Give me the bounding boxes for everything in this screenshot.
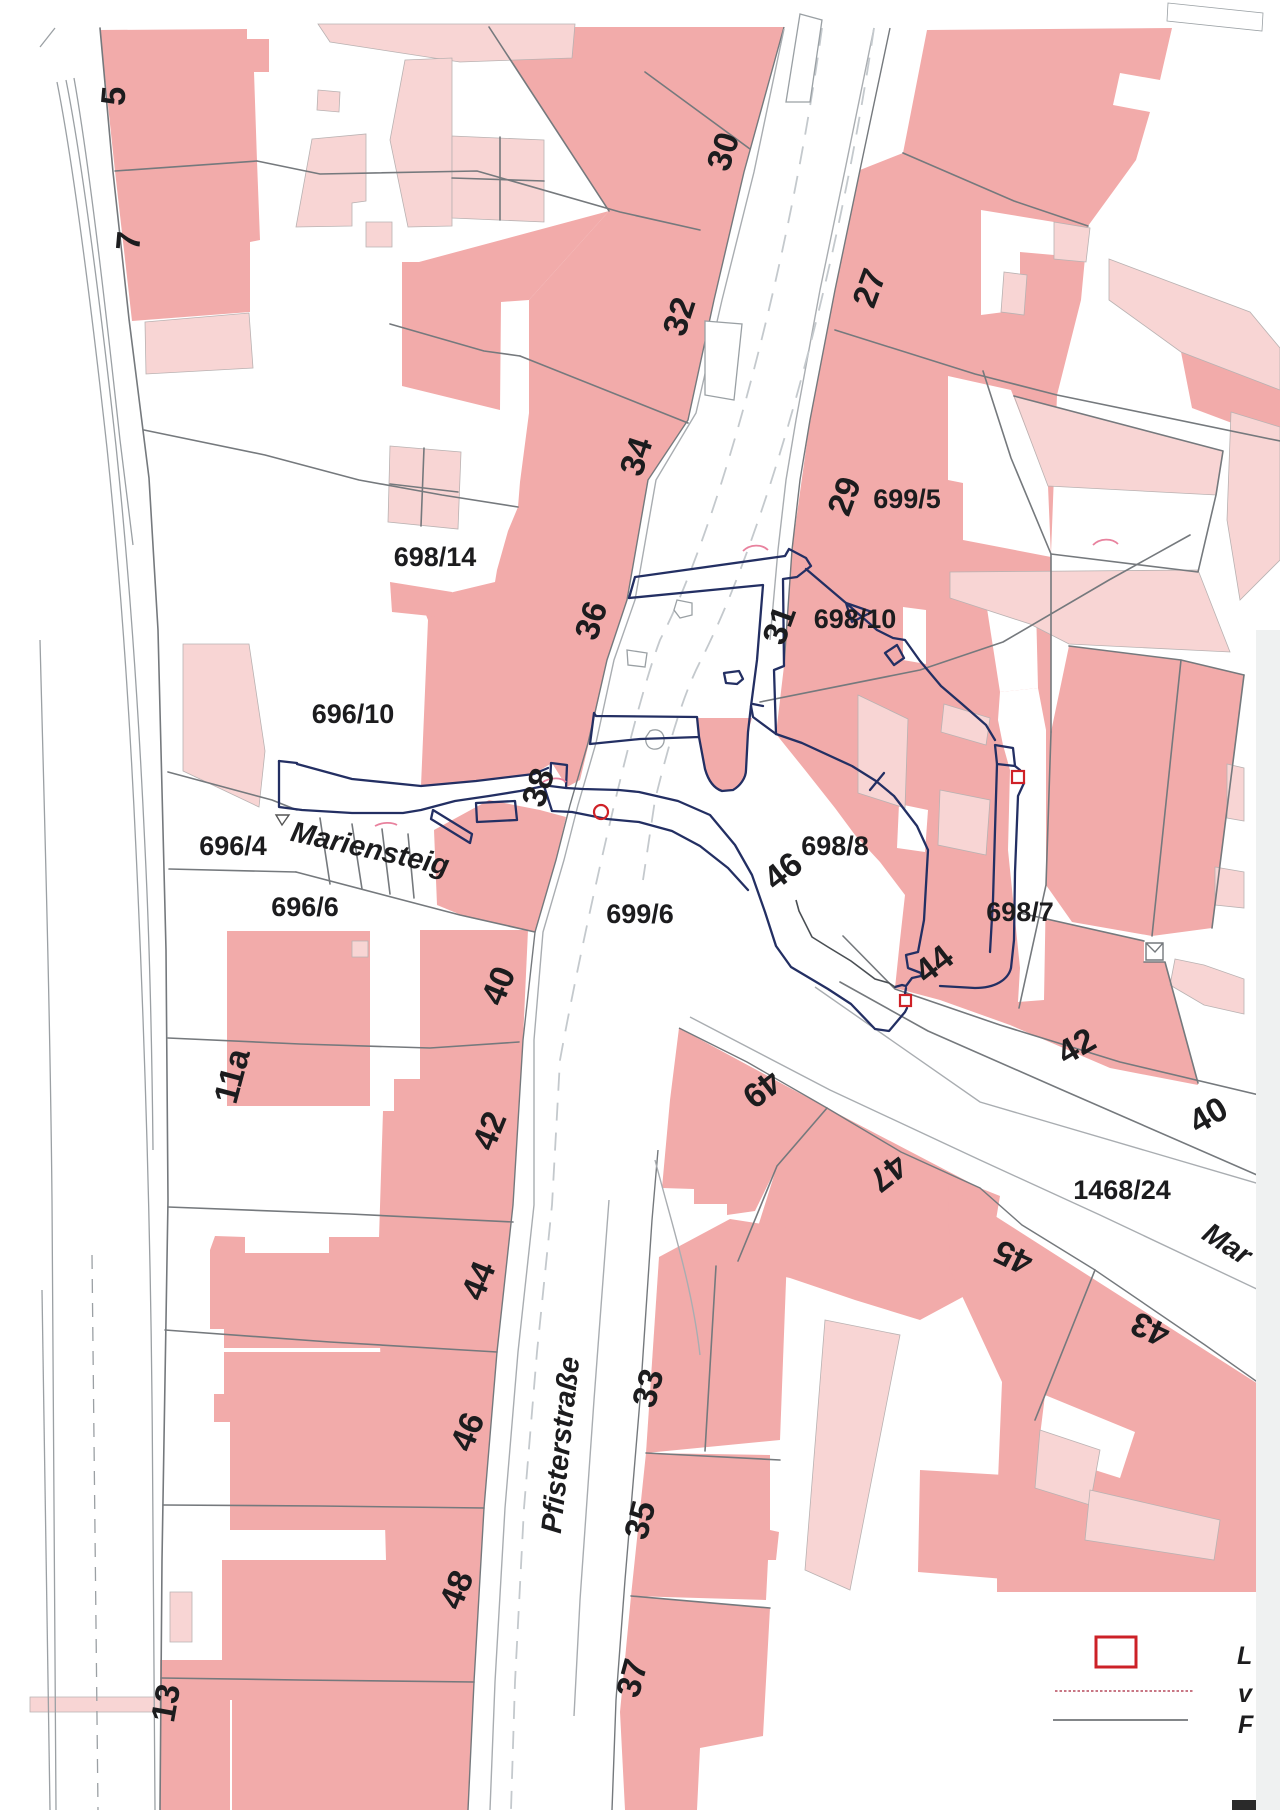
- svg-text:696/10: 696/10: [312, 699, 395, 729]
- svg-text:L: L: [1237, 1642, 1252, 1670]
- svg-text:696/4: 696/4: [199, 831, 267, 861]
- svg-text:699/5: 699/5: [873, 484, 941, 514]
- svg-text:1468/24: 1468/24: [1073, 1175, 1171, 1205]
- svg-text:699/6: 699/6: [606, 899, 674, 929]
- svg-text:7: 7: [109, 230, 149, 252]
- svg-text:698/7: 698/7: [986, 897, 1054, 927]
- svg-text:698/14: 698/14: [394, 542, 477, 572]
- svg-text:698/8: 698/8: [801, 831, 869, 861]
- svg-text:698/10: 698/10: [814, 604, 897, 634]
- svg-text:696/6: 696/6: [271, 892, 339, 922]
- svg-text:13: 13: [144, 1681, 188, 1725]
- svg-text:5: 5: [94, 85, 134, 107]
- svg-text:v: v: [1238, 1680, 1254, 1708]
- svg-text:F: F: [1238, 1711, 1254, 1739]
